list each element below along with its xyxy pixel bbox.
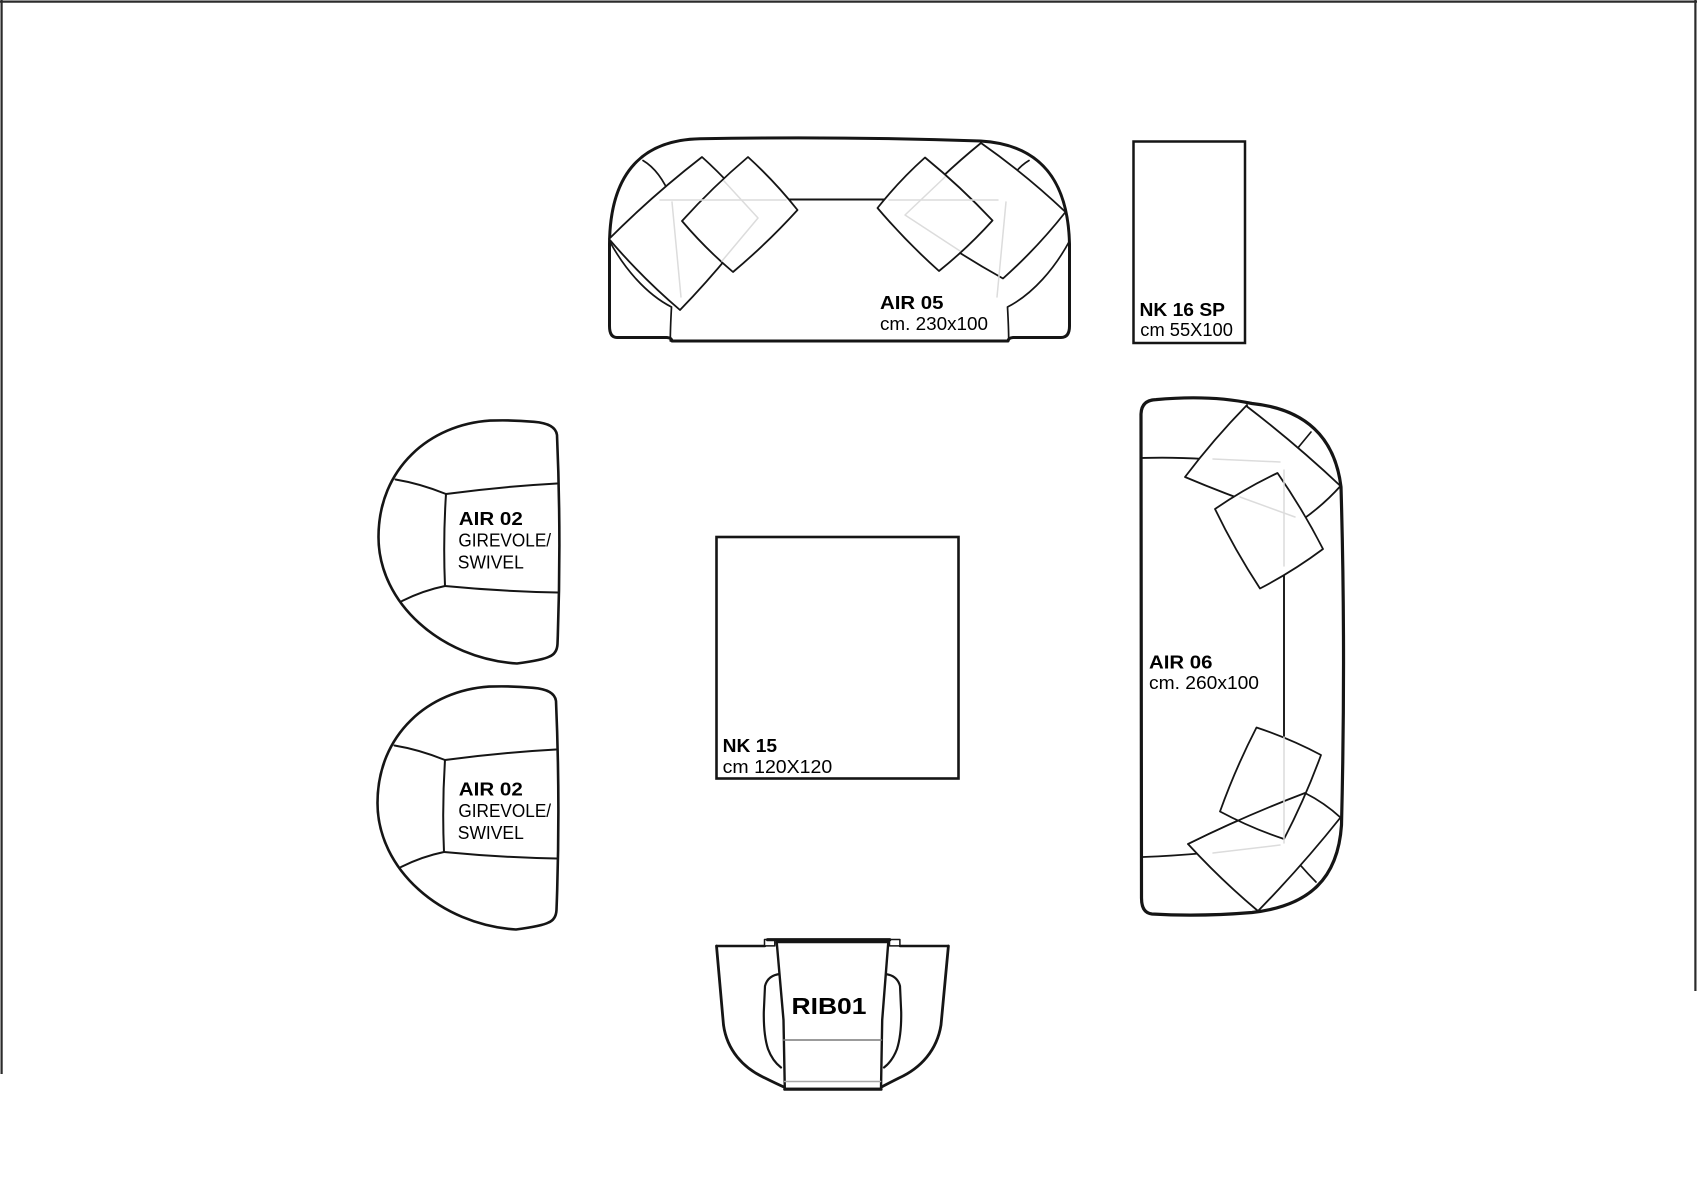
svg-text:NK 16 SP: NK 16 SP	[1140, 299, 1226, 320]
svg-text:SWIVEL: SWIVEL	[458, 552, 524, 573]
svg-text:AIR 06: AIR 06	[1149, 652, 1213, 673]
svg-text:GIREVOLE/: GIREVOLE/	[458, 529, 551, 550]
svg-text:NK 15: NK 15	[723, 735, 777, 756]
svg-text:cm. 260x100: cm. 260x100	[1149, 672, 1259, 693]
svg-text:AIR 02: AIR 02	[459, 508, 523, 529]
svg-text:AIR 05: AIR 05	[880, 292, 944, 313]
svg-text:cm. 230x100: cm. 230x100	[880, 313, 988, 334]
svg-text:GIREVOLE/: GIREVOLE/	[458, 800, 551, 821]
svg-text:SWIVEL: SWIVEL	[458, 822, 524, 843]
svg-text:AIR 02: AIR 02	[459, 779, 523, 800]
svg-text:cm 120X120: cm 120X120	[723, 756, 833, 777]
svg-text:RIB01: RIB01	[792, 993, 867, 1019]
svg-text:cm 55X100: cm 55X100	[1140, 319, 1233, 340]
